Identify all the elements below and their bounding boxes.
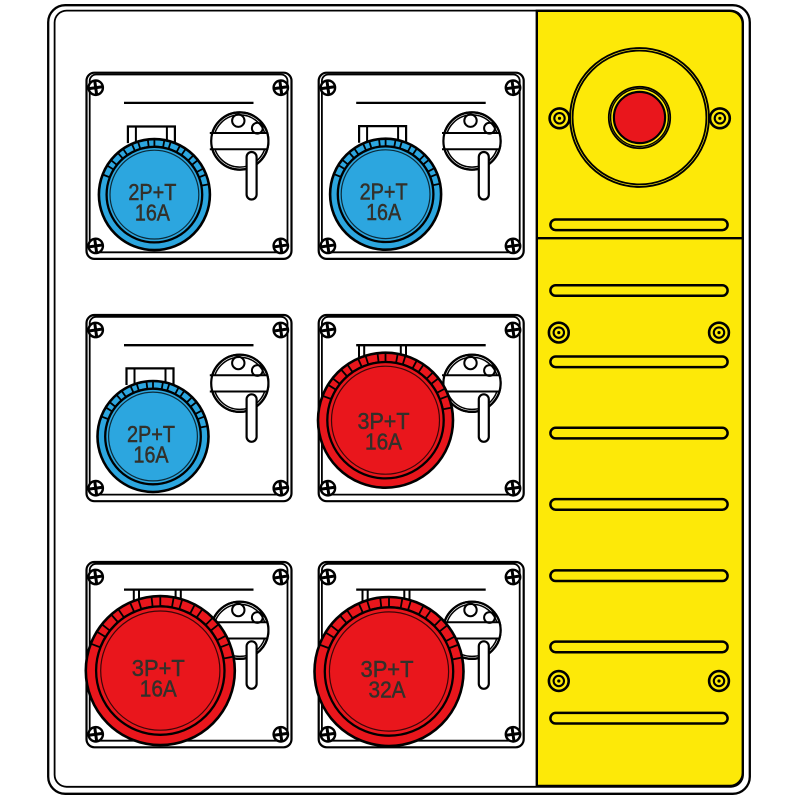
svg-text:16A: 16A: [134, 442, 170, 468]
svg-text:16A: 16A: [135, 200, 171, 226]
svg-text:16A: 16A: [140, 676, 178, 702]
svg-text:32A: 32A: [369, 677, 407, 703]
svg-text:16A: 16A: [365, 428, 403, 454]
svg-text:16A: 16A: [366, 199, 402, 225]
